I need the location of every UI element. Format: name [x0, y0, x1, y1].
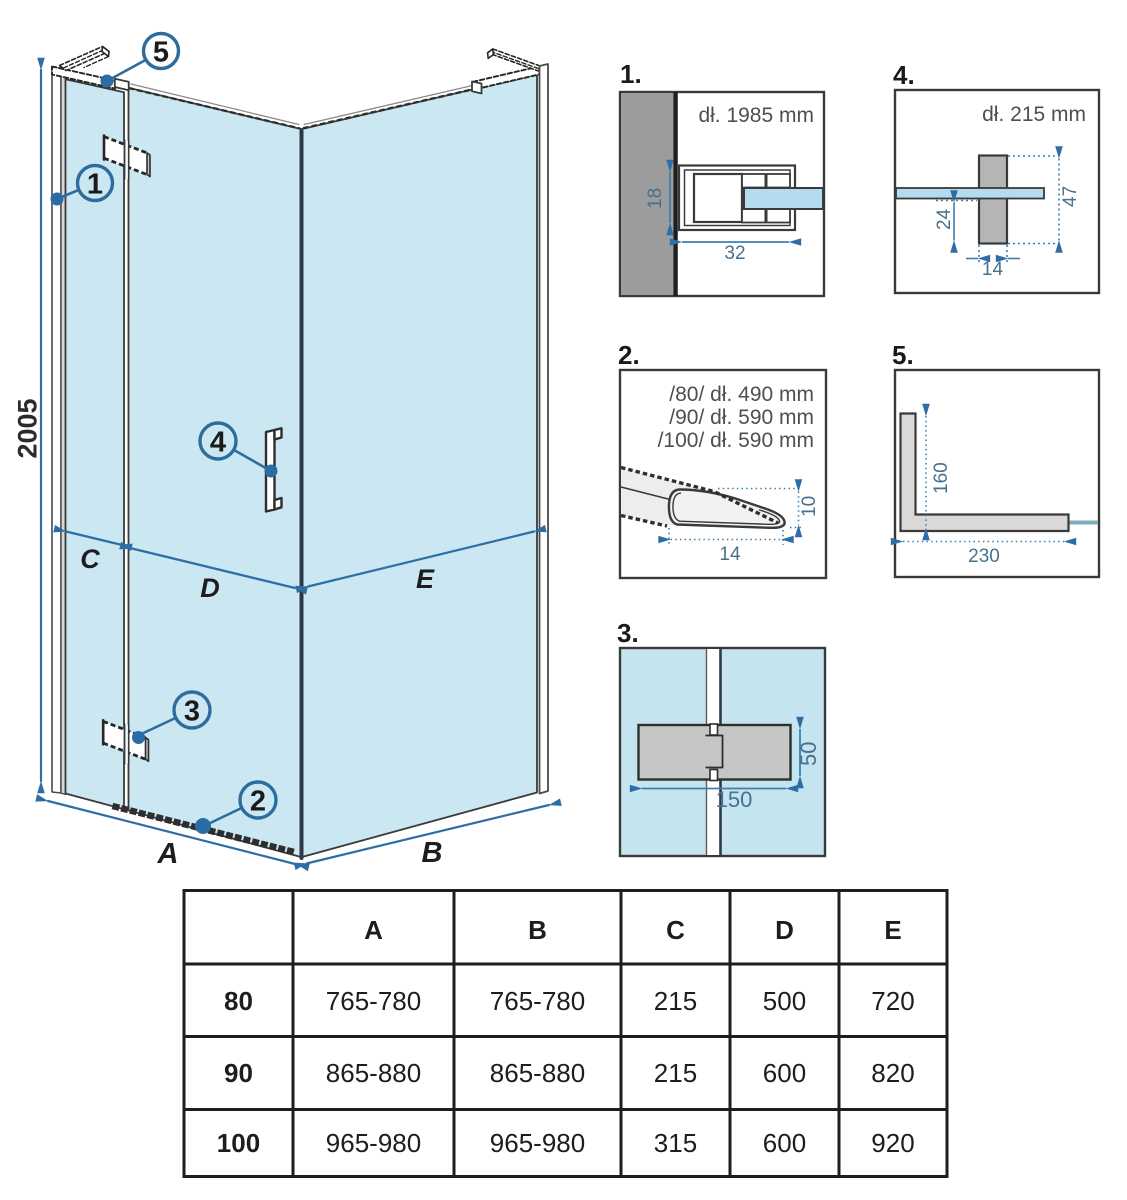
svg-text:820: 820 — [871, 1058, 914, 1088]
svg-text:5.: 5. — [892, 340, 914, 370]
svg-text:865-880: 865-880 — [490, 1058, 585, 1088]
svg-text:600: 600 — [763, 1128, 806, 1158]
svg-text:D: D — [775, 915, 794, 945]
svg-text:4: 4 — [210, 427, 226, 459]
svg-text:E: E — [884, 915, 901, 945]
svg-text:720: 720 — [871, 986, 914, 1016]
svg-text:100: 100 — [217, 1128, 260, 1158]
svg-text:80: 80 — [224, 986, 253, 1016]
svg-text:D: D — [200, 573, 220, 603]
svg-text:160: 160 — [931, 462, 952, 494]
svg-text:315: 315 — [654, 1128, 697, 1158]
svg-text:3: 3 — [184, 696, 200, 728]
svg-text:/80/ dł. 490 mm: /80/ dł. 490 mm — [669, 383, 814, 406]
svg-text:600: 600 — [763, 1058, 806, 1088]
svg-text:3.: 3. — [617, 618, 639, 648]
svg-text:24: 24 — [934, 208, 955, 230]
svg-text:215: 215 — [654, 986, 697, 1016]
svg-text:2005: 2005 — [13, 398, 43, 458]
svg-text:965-980: 965-980 — [490, 1128, 585, 1158]
svg-text:/100/ dł. 590 mm: /100/ dł. 590 mm — [658, 429, 814, 452]
svg-text:150: 150 — [716, 787, 753, 812]
svg-text:500: 500 — [763, 986, 806, 1016]
svg-text:10: 10 — [799, 496, 820, 517]
svg-text:14: 14 — [719, 544, 741, 565]
svg-text:C: C — [666, 915, 685, 945]
svg-text:920: 920 — [871, 1128, 914, 1158]
svg-text:/90/ dł. 590 mm: /90/ dł. 590 mm — [669, 406, 814, 429]
svg-text:965-980: 965-980 — [326, 1128, 421, 1158]
svg-text:90: 90 — [224, 1058, 253, 1088]
svg-text:215: 215 — [654, 1058, 697, 1088]
svg-text:18: 18 — [645, 188, 666, 209]
svg-text:2: 2 — [250, 786, 266, 818]
svg-text:dł. 1985 mm: dł. 1985 mm — [698, 104, 814, 127]
svg-text:865-880: 865-880 — [326, 1058, 421, 1088]
svg-text:A: A — [364, 915, 383, 945]
svg-text:4.: 4. — [893, 60, 915, 90]
svg-text:50: 50 — [796, 742, 821, 766]
svg-text:A: A — [157, 838, 179, 870]
svg-text:dł. 215 mm: dł. 215 mm — [982, 103, 1086, 126]
svg-text:1.: 1. — [620, 59, 642, 89]
svg-text:B: B — [528, 915, 547, 945]
svg-text:230: 230 — [968, 546, 1000, 567]
svg-text:E: E — [416, 564, 435, 594]
svg-text:47: 47 — [1060, 186, 1081, 207]
svg-text:14: 14 — [982, 259, 1004, 280]
svg-text:5: 5 — [153, 37, 169, 69]
svg-text:B: B — [422, 837, 443, 869]
svg-text:C: C — [80, 544, 100, 574]
svg-text:32: 32 — [724, 243, 745, 264]
svg-text:765-780: 765-780 — [326, 986, 421, 1016]
svg-text:765-780: 765-780 — [490, 986, 585, 1016]
svg-text:2.: 2. — [618, 340, 640, 370]
svg-text:1: 1 — [87, 169, 103, 201]
